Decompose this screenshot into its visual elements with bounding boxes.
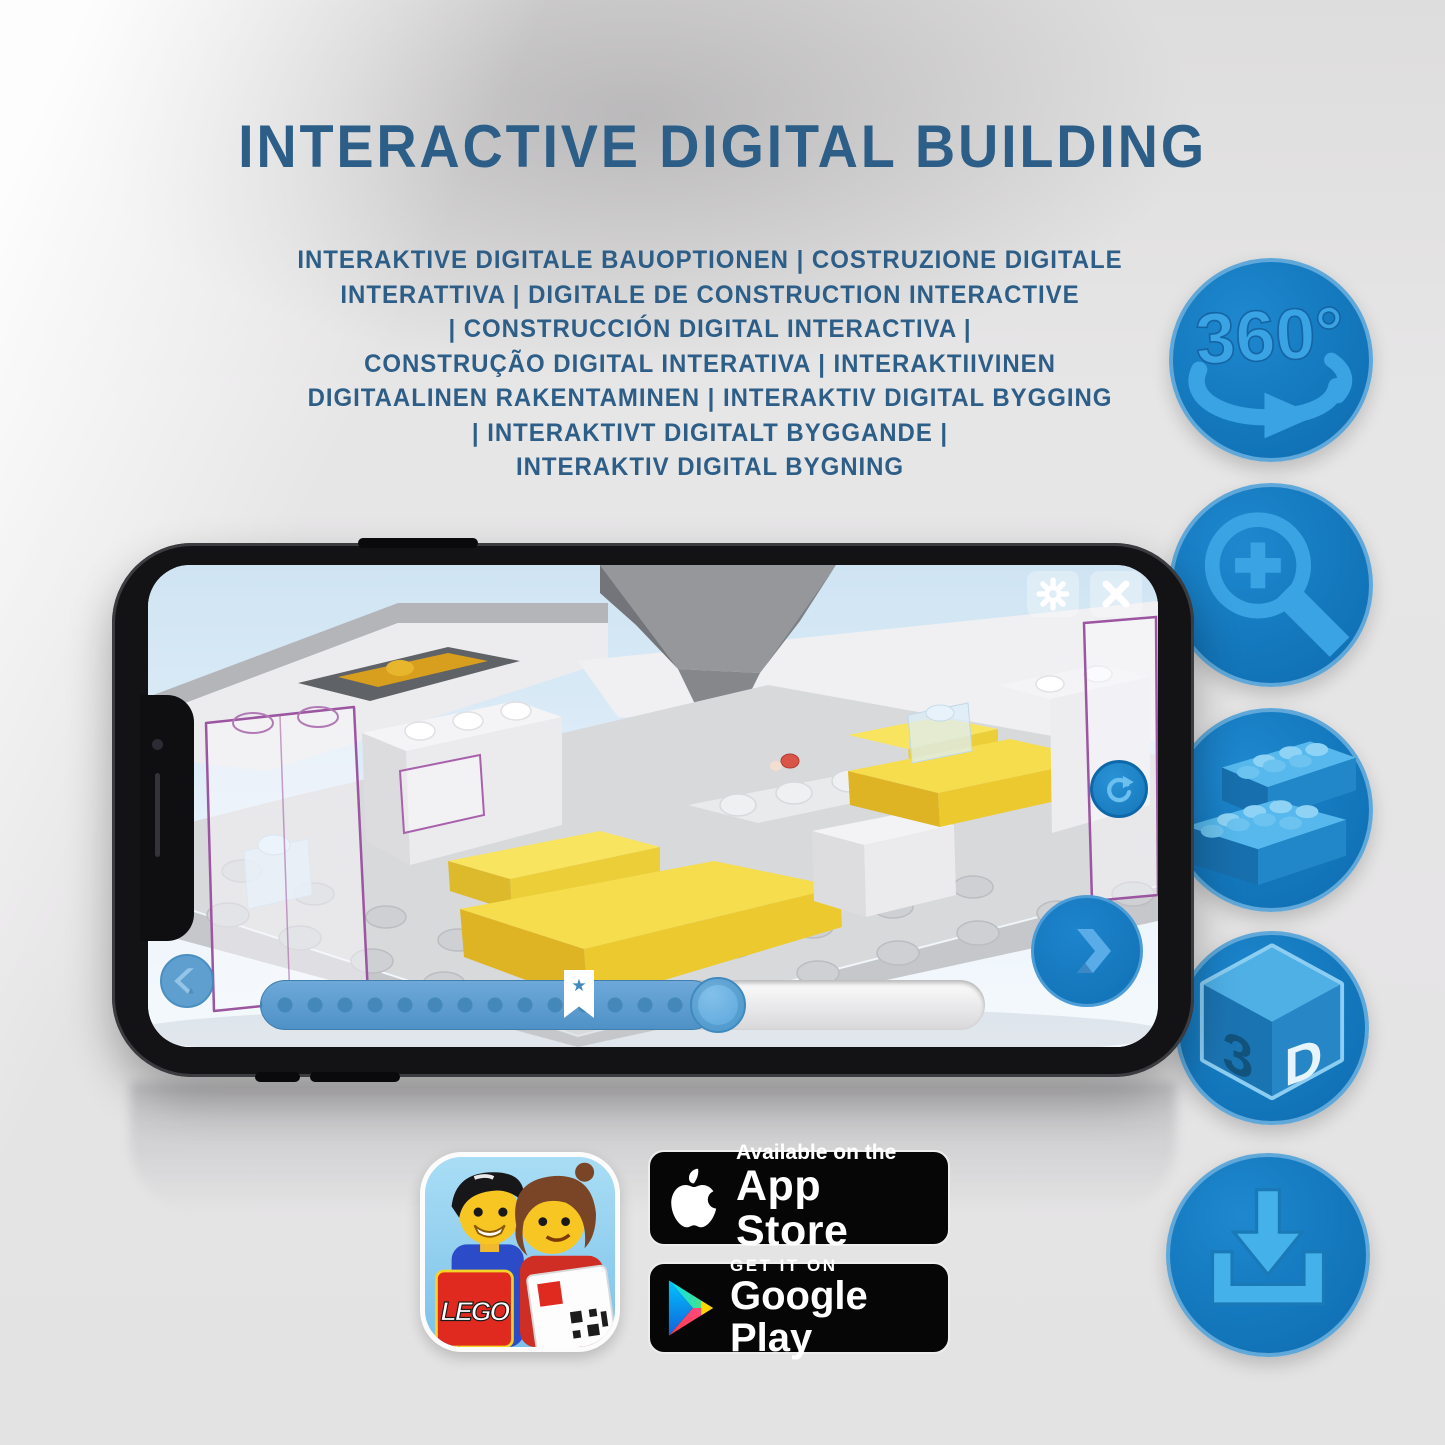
slider-knob[interactable] [690, 977, 746, 1033]
next-arrow-icon [1059, 923, 1115, 979]
instruction-paper [526, 1264, 615, 1347]
settings-button[interactable] [1027, 571, 1079, 617]
subtitle-line: | INTERAKTIVT DIGITALT BYGGANDE | [115, 416, 1305, 451]
lego-logo: LEGO [436, 1271, 512, 1347]
red-piece [781, 754, 799, 768]
phone-mute-switch [255, 1072, 300, 1082]
previous-step-button[interactable] [160, 954, 214, 1008]
subtitle-line: INTERATTIVA | DIGITALE DE CONSTRUCTION I… [115, 278, 1305, 313]
ghost-brick-right [1084, 617, 1158, 901]
marketing-image: INTERACTIVE DIGITAL BUILDING INTERAKTIVE… [0, 0, 1445, 1445]
close-button[interactable] [1090, 571, 1142, 617]
google-play-name: Google Play [730, 1275, 930, 1359]
google-play-tagline: GET IT ON [730, 1257, 930, 1275]
feature-360-label: 360° [1193, 292, 1346, 380]
app-store-badge[interactable]: Available on the App Store [648, 1150, 950, 1246]
google-play-icon [668, 1279, 714, 1337]
slider-fill [260, 980, 717, 1030]
lego-app-icon[interactable]: LEGO [420, 1152, 620, 1352]
plus-icon [1235, 543, 1281, 589]
phone-notch [140, 695, 194, 941]
cube-letter-3: 3 [1222, 1018, 1253, 1093]
build-progress-slider[interactable]: ★ [260, 980, 985, 1030]
google-play-badge[interactable]: GET IT ON Google Play [648, 1262, 950, 1354]
earpiece-speaker [155, 773, 160, 857]
phone-power-button [358, 538, 478, 548]
rotate-reset-button[interactable] [1090, 760, 1148, 818]
brick-lower [1186, 800, 1346, 885]
front-camera [152, 739, 163, 750]
download-arrow [1234, 1190, 1303, 1275]
feature-download-icon [1166, 1153, 1370, 1357]
feature-360-icon: 360° [1169, 258, 1373, 462]
subtitle-line: DIGITAALINEN RAKENTAMINEN | INTERAKTIV D… [115, 381, 1305, 416]
phone-mockup: ★ [112, 543, 1194, 1077]
rotate-arrowhead [1264, 393, 1316, 439]
page-title: INTERACTIVE DIGITAL BUILDING [51, 112, 1395, 181]
app-store-name: App Store [736, 1164, 930, 1254]
apple-icon [668, 1167, 720, 1229]
feature-3d-icon: 3 D [1175, 931, 1369, 1125]
gear-icon [1036, 577, 1070, 611]
feature-zoom-icon [1169, 483, 1373, 687]
close-icon [1099, 577, 1133, 611]
subtitle-line: | CONSTRUCCIÓN DIGITAL INTERACTIVA | [115, 312, 1305, 347]
ghost-brick-left [206, 707, 368, 1011]
feature-brick-icon [1169, 708, 1373, 912]
magnifier-handle [1294, 601, 1330, 637]
cube-letter-d: D [1284, 1026, 1322, 1099]
lego-logo-text: LEGO [441, 1296, 511, 1326]
subtitle-line: INTERAKTIVE DIGITALE BAUOPTIONEN | COSTR… [115, 243, 1305, 278]
lego-3d-viewport[interactable] [148, 565, 1158, 1047]
app-screen: ★ [148, 565, 1158, 1047]
app-store-tagline: Available on the [736, 1142, 930, 1164]
prev-arrow-icon [170, 964, 204, 998]
rotate-reset-icon [1102, 772, 1136, 806]
subtitle-line: INTERAKTIV DIGITAL BYGNING [115, 450, 1305, 485]
multilingual-subtitle: INTERAKTIVE DIGITALE BAUOPTIONEN | COSTR… [115, 243, 1305, 485]
phone-volume-buttons [310, 1072, 400, 1082]
subtitle-line: CONSTRUÇÃO DIGITAL INTERATIVA | INTERAKT… [115, 347, 1305, 382]
next-step-button[interactable] [1031, 895, 1143, 1007]
